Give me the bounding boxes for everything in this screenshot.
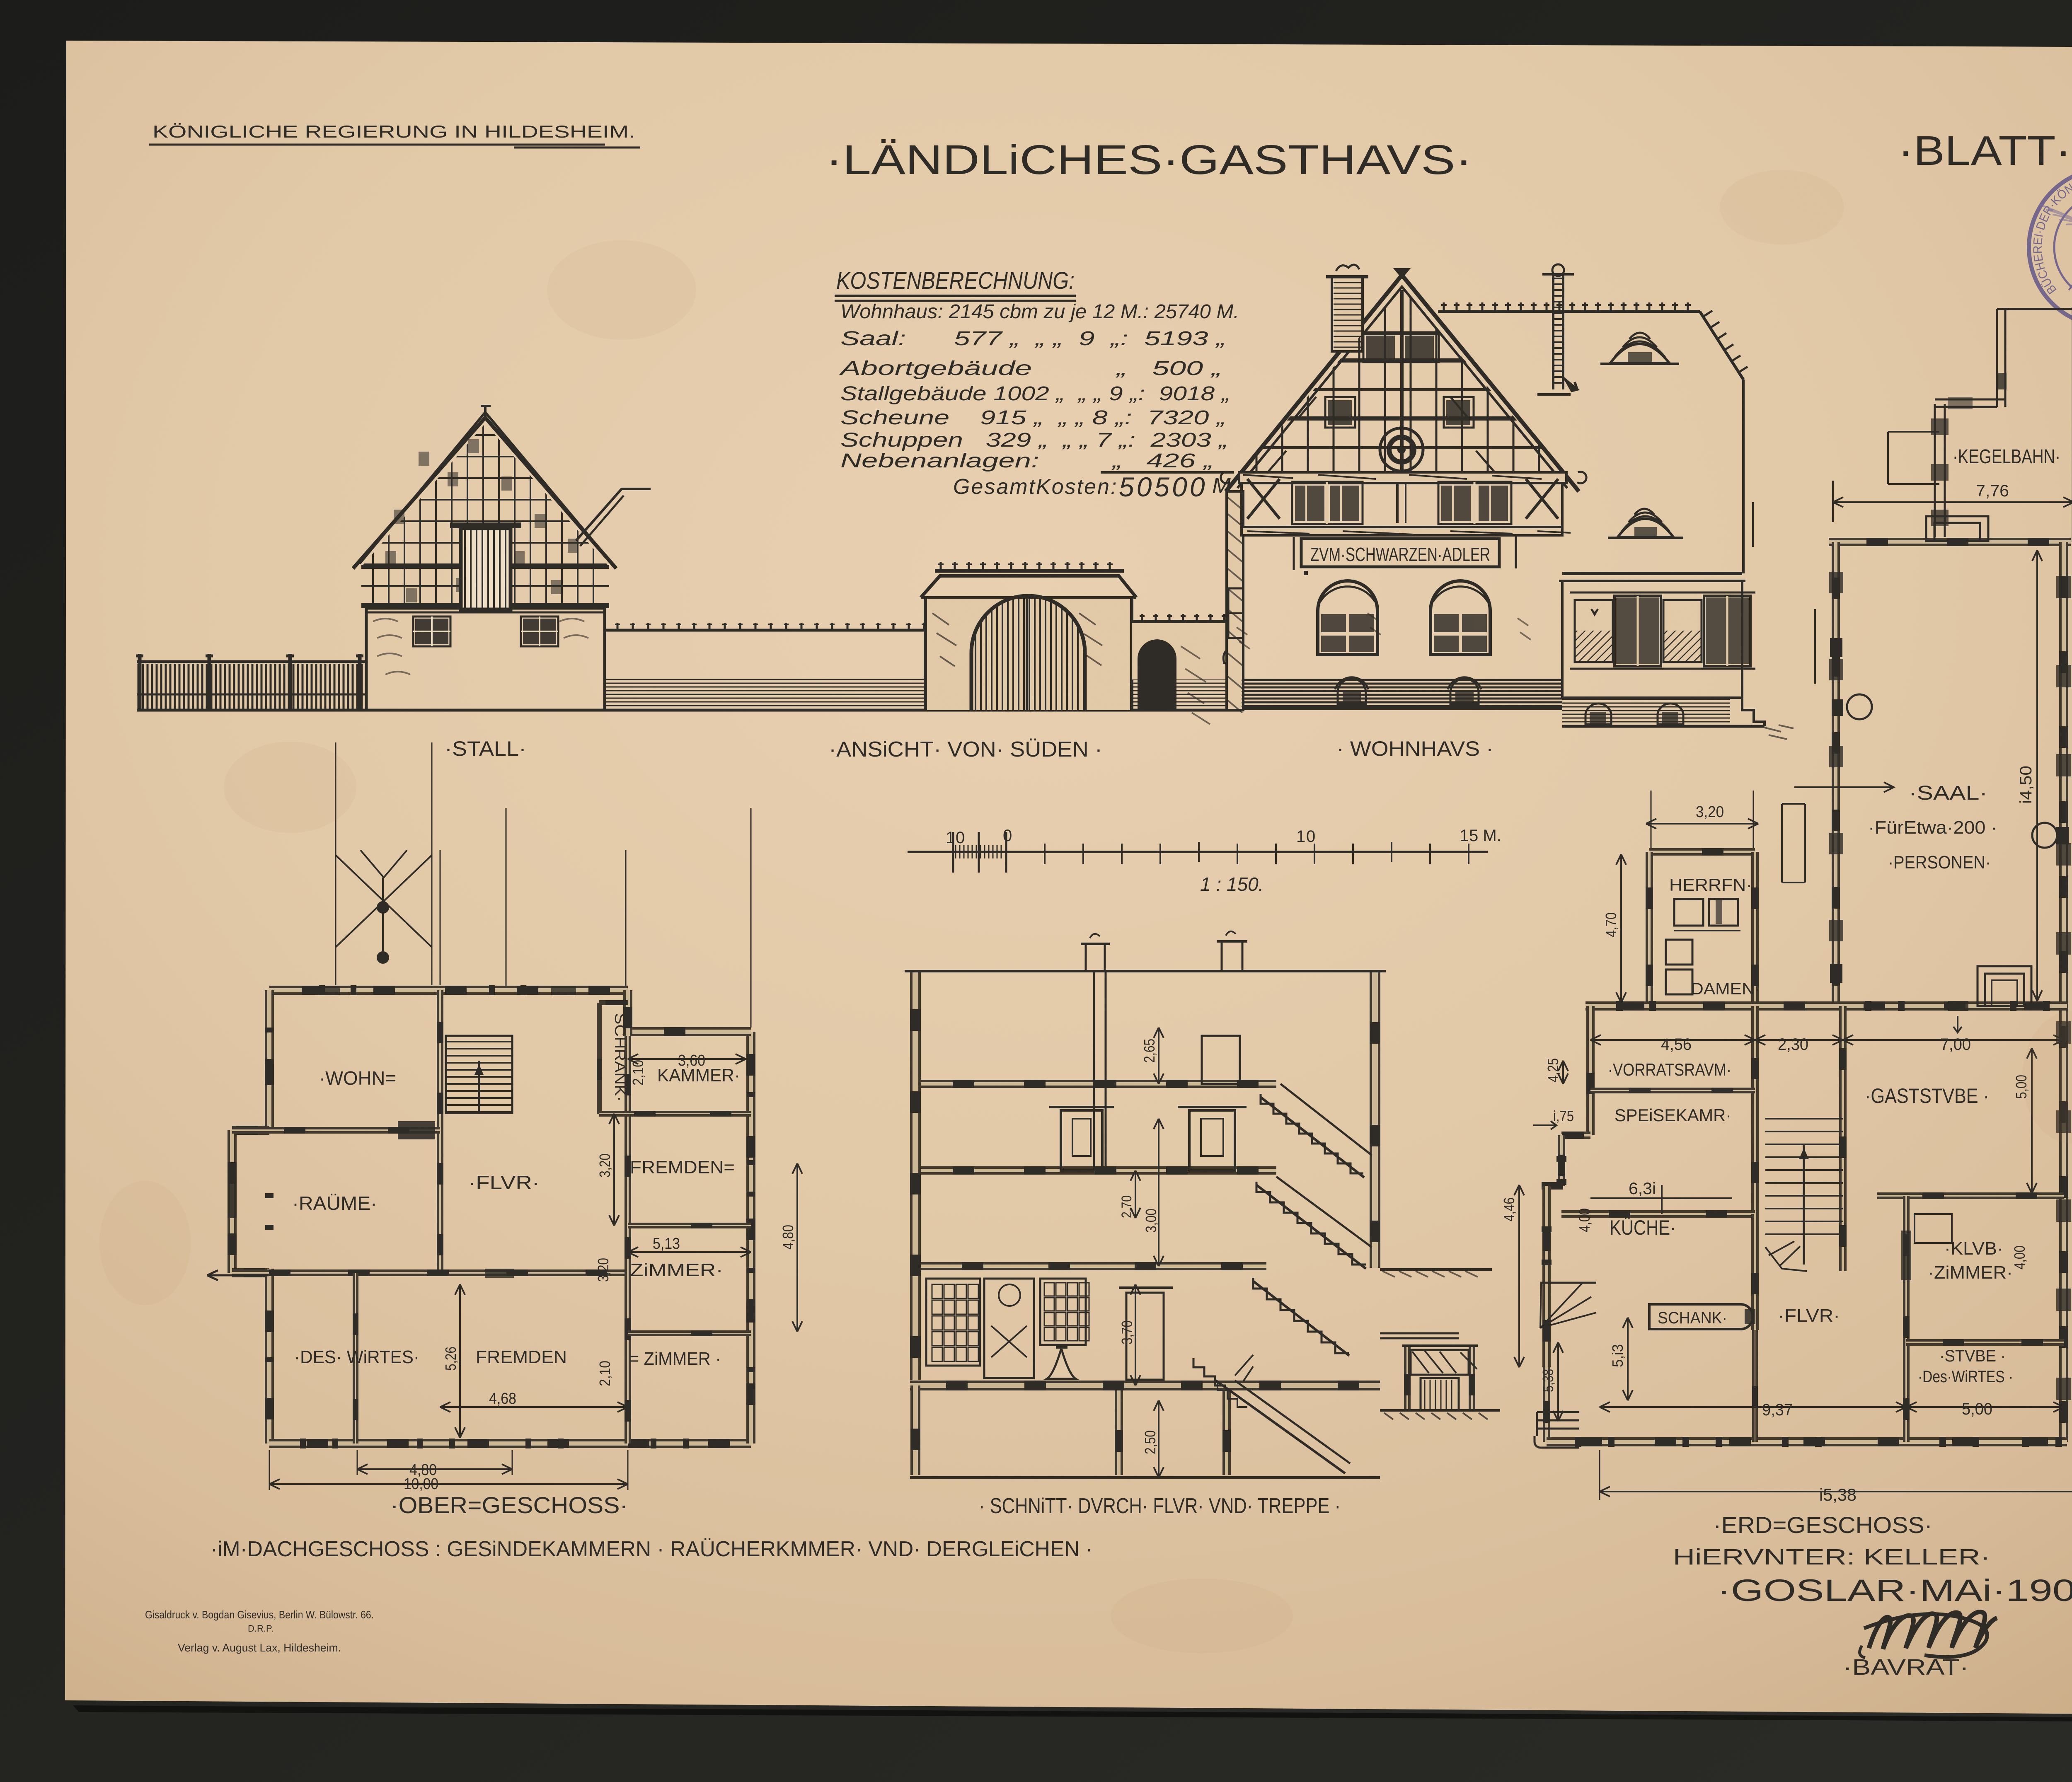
svg-text:KOSTENBERECHNUNG:: KOSTENBERECHNUNG: [836, 267, 1075, 294]
svg-text:·OBER=GESCHOSS·: ·OBER=GESCHOSS· [390, 1492, 628, 1518]
svg-text:Abortgebäude „ 500: Abortgebäude „ 500 „ [838, 358, 1222, 380]
svg-text:0: 0 [1306, 827, 1315, 846]
svg-text:= ZiMMER ·: = ZiMMER · [629, 1349, 721, 1369]
svg-text:Stallgebäude 1002 „ „ „ 9 „:: Stallgebäude 1002 „ „ „ 9 „: 9018 „ [840, 383, 1230, 405]
svg-text:7,76: 7,76 [1976, 482, 2009, 500]
svg-text:·Des·WiRTES ·: ·Des·WiRTES · [1918, 1368, 2013, 1386]
svg-text:3,60: 3,60 [678, 1052, 705, 1069]
svg-text:KÖNIGLICHE REGIERUNG IN HILDES: KÖNIGLICHE REGIERUNG IN HILDESHEIM. [152, 122, 635, 141]
svg-text:·STALL·: ·STALL· [445, 737, 526, 760]
svg-text:4,70: 4,70 [1602, 912, 1619, 937]
svg-text:3,20: 3,20 [596, 1153, 613, 1178]
svg-text:ZiMMER·: ZiMMER· [630, 1260, 723, 1280]
svg-text:4,56: 4,56 [1661, 1035, 1692, 1054]
svg-text:7,00: 7,00 [1940, 1035, 1971, 1054]
svg-text:5 M.: 5 M. [1469, 827, 1501, 845]
svg-text:4,00: 4,00 [2011, 1245, 2028, 1269]
svg-text:·DES· WiRTES·: ·DES· WiRTES· [294, 1347, 419, 1367]
svg-text:5,26: 5,26 [442, 1347, 459, 1371]
svg-text:·VORRATSRAVM·: ·VORRATSRAVM· [1608, 1060, 1731, 1079]
svg-text:6,3i: 6,3i [1629, 1180, 1656, 1198]
svg-text:DAMEN·: DAMEN· [1691, 980, 1760, 998]
svg-text:SCHANK·: SCHANK· [1658, 1309, 1727, 1327]
svg-text:ZVM·SCHWARZEN·ADLER: ZVM·SCHWARZEN·ADLER [1310, 544, 1490, 565]
svg-text:·ANSiCHT· VON· SÜDEN ·: ·ANSiCHT· VON· SÜDEN · [829, 737, 1102, 762]
svg-text:·ZiMMER·: ·ZiMMER· [1928, 1262, 2013, 1283]
svg-text:9,37: 9,37 [1762, 1401, 1793, 1419]
svg-text:10,00: 10,00 [404, 1475, 438, 1493]
svg-text:5,13: 5,13 [653, 1235, 680, 1252]
svg-text:· SCHNiTT· DVRCH· FLVR· VND: · SCHNiTT· DVRCH· FLVR· VND· TREPPE · [979, 1494, 1341, 1518]
svg-text:HERRFN·: HERRFN· [1669, 875, 1752, 895]
svg-text:1: 1 [1296, 827, 1305, 846]
svg-text:·KLVB·: ·KLVB· [1944, 1238, 2003, 1259]
svg-text:5,i3: 5,i3 [1609, 1344, 1626, 1367]
svg-text:Scheune 915 „ „ „ 8 „: 73: Scheune 915 „ „ „ 8 „: 7320 „ [840, 407, 1226, 429]
svg-text:HiERVNTER: KELLER·: HiERVNTER: KELLER· [1673, 1545, 1990, 1569]
svg-text:2,30: 2,30 [1778, 1035, 1808, 1054]
svg-text:·PERSONEN·: ·PERSONEN· [1888, 852, 1991, 873]
svg-text:Schuppen 329 „ „ „ 7 „: 23: Schuppen 329 „ „ „ 7 „: 2303 „ [840, 429, 1228, 451]
svg-text:Saal: 577 „ „ „ 9 „:: Saal: 577 „ „ „ 9 „: 5193 „ [840, 328, 1226, 350]
svg-text:5,00: 5,00 [1962, 1400, 1992, 1418]
svg-text:·ERD=GESCHOSS·: ·ERD=GESCHOSS· [1713, 1512, 1932, 1538]
svg-text:4,25: 4,25 [1544, 1058, 1561, 1082]
svg-text:3,70: 3,70 [1118, 1320, 1135, 1344]
svg-text:1: 1 [1460, 827, 1469, 845]
svg-text:·GOSLAR·MAi·1907·: ·GOSLAR·MAi·1907· [1717, 1573, 2072, 1608]
svg-text:3,20: 3,20 [595, 1258, 612, 1282]
svg-text:SCHRANK·: SCHRANK· [612, 1013, 629, 1102]
svg-text:Wohnhaus: 2145 cbm zu je 12 M.: Wohnhaus: 2145 cbm zu je 12 M.: 25740 M. [840, 301, 1239, 323]
svg-text:·STVBE ·: ·STVBE · [1939, 1347, 2006, 1365]
svg-text:5,38: 5,38 [1539, 1369, 1556, 1392]
svg-text:·BAVRAT·: ·BAVRAT· [1843, 1655, 1969, 1680]
svg-text:·KEGELBAHN·: ·KEGELBAHN· [1953, 446, 2060, 468]
svg-text:· WOHNHAVS ·: · WOHNHAVS · [1336, 737, 1493, 760]
svg-text:4,68: 4,68 [489, 1390, 516, 1407]
svg-text:·BLATT· 20: ·BLATT· 20 [1898, 128, 2072, 174]
svg-text:4,80: 4,80 [779, 1225, 796, 1250]
svg-text:KÜCHE·: KÜCHE· [1610, 1216, 1676, 1239]
svg-text:i,75: i,75 [1553, 1107, 1574, 1124]
svg-text:2,10: 2,10 [596, 1361, 613, 1386]
svg-text:50500: 50500 [1119, 471, 1208, 502]
svg-text:2,50: 2,50 [1142, 1430, 1159, 1454]
svg-text:0: 0 [1003, 827, 1012, 845]
svg-text:·FürEtwa·200 ·: ·FürEtwa·200 · [1868, 817, 1997, 838]
svg-text:·FLVR·: ·FLVR· [468, 1172, 540, 1193]
svg-text:SPEiSEKAMR·: SPEiSEKAMR· [1615, 1105, 1731, 1125]
svg-text:2,10: 2,10 [629, 1060, 646, 1086]
svg-text:2,70: 2,70 [1119, 1195, 1135, 1218]
svg-text:4,46: 4,46 [1501, 1197, 1518, 1221]
svg-text:GesamtKosten:: GesamtKosten: [953, 475, 1118, 499]
svg-text:D.R.P.: D.R.P. [248, 1623, 274, 1634]
svg-text:FREMDEN: FREMDEN [476, 1347, 567, 1367]
svg-text:Nebenanlagen: „ 426: Nebenanlagen: „ 426 „ [840, 450, 1213, 472]
svg-text:i4,50: i4,50 [2017, 766, 2035, 804]
svg-text:·FLVR·: ·FLVR· [1778, 1306, 1840, 1326]
svg-text:·SAAL·: ·SAAL· [1909, 782, 1987, 804]
svg-text:·WOHN=: ·WOHN= [319, 1067, 396, 1089]
svg-text:0: 0 [956, 829, 965, 847]
svg-text:2,65: 2,65 [1141, 1039, 1158, 1063]
svg-text:1 : 150.: 1 : 150. [1200, 873, 1264, 895]
svg-text:Verlag v. August Lax, Hildeshe: Verlag v. August Lax, Hildesheim. [178, 1642, 341, 1654]
svg-text:3,00: 3,00 [1143, 1209, 1159, 1233]
svg-text:·iM·DACHGESCHOSS : GESiNDEKAMM: ·iM·DACHGESCHOSS : GESiNDEKAMMERN · RAÜC… [211, 1537, 1093, 1561]
svg-text:4,00: 4,00 [1576, 1208, 1593, 1232]
svg-text:3,20: 3,20 [1696, 803, 1724, 821]
svg-text:·GASTSTVBE ·: ·GASTSTVBE · [1865, 1084, 1989, 1107]
svg-text:i5,38: i5,38 [1819, 1485, 1857, 1504]
svg-text:Gisaldruck v. Bogdan Gisevius,: Gisaldruck v. Bogdan Gisevius, Berlin W.… [145, 1608, 374, 1621]
svg-text:FREMDEN=: FREMDEN= [630, 1157, 735, 1178]
svg-text:·LÄNDLiCHES·GASTHAVS·: ·LÄNDLiCHES·GASTHAVS· [825, 137, 1472, 183]
svg-text:·RAÜME·: ·RAÜME· [292, 1192, 377, 1214]
